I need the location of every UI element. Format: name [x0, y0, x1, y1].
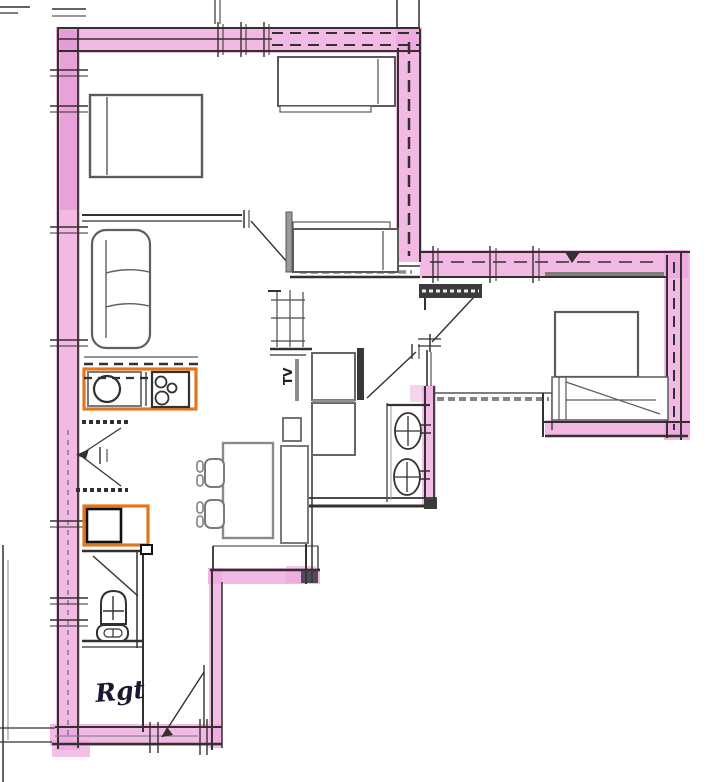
tv-label: TV [281, 367, 295, 385]
door-swing-bathroom [367, 352, 416, 398]
door-swing-bedroom [251, 221, 288, 263]
bed-single-bottom-board [293, 222, 390, 229]
sideboard [281, 446, 308, 543]
bed-right-room [555, 312, 638, 377]
wall-bath-corner-foot [424, 499, 437, 509]
sink-bowl [94, 376, 120, 402]
tv-stand [295, 359, 299, 401]
door-swing-wc [93, 556, 138, 596]
chair-seat [205, 500, 224, 528]
dining-table [223, 443, 273, 538]
bed-single-top-board [280, 106, 371, 112]
sofa [92, 230, 150, 348]
wall-band-corridor-right [209, 568, 222, 748]
small-box [141, 545, 152, 554]
storage-label: Rgt [93, 675, 147, 708]
stool-box [283, 418, 301, 441]
chair-back [197, 516, 203, 527]
fridge [87, 509, 121, 542]
floor-plan: TVRgt [0, 0, 711, 782]
bed-single-bottom-headboard [286, 212, 292, 272]
appliance-box-upper [312, 353, 355, 400]
door-jamb-bar [357, 348, 364, 400]
wall-band-top [56, 27, 420, 53]
chair-back [197, 461, 203, 472]
wall-band-left-deep [60, 30, 78, 210]
door-swing-hall [432, 297, 474, 342]
pink-blob-bath-corner [410, 385, 436, 402]
chair-back [197, 475, 203, 486]
floor-plan-page: TVRgt [0, 0, 711, 782]
wall-bath-left-foot [301, 570, 318, 583]
chair-seat [205, 459, 224, 487]
chair-back [197, 502, 203, 513]
appliance-box-lower [312, 403, 355, 455]
bed-single-bottom [293, 229, 398, 272]
